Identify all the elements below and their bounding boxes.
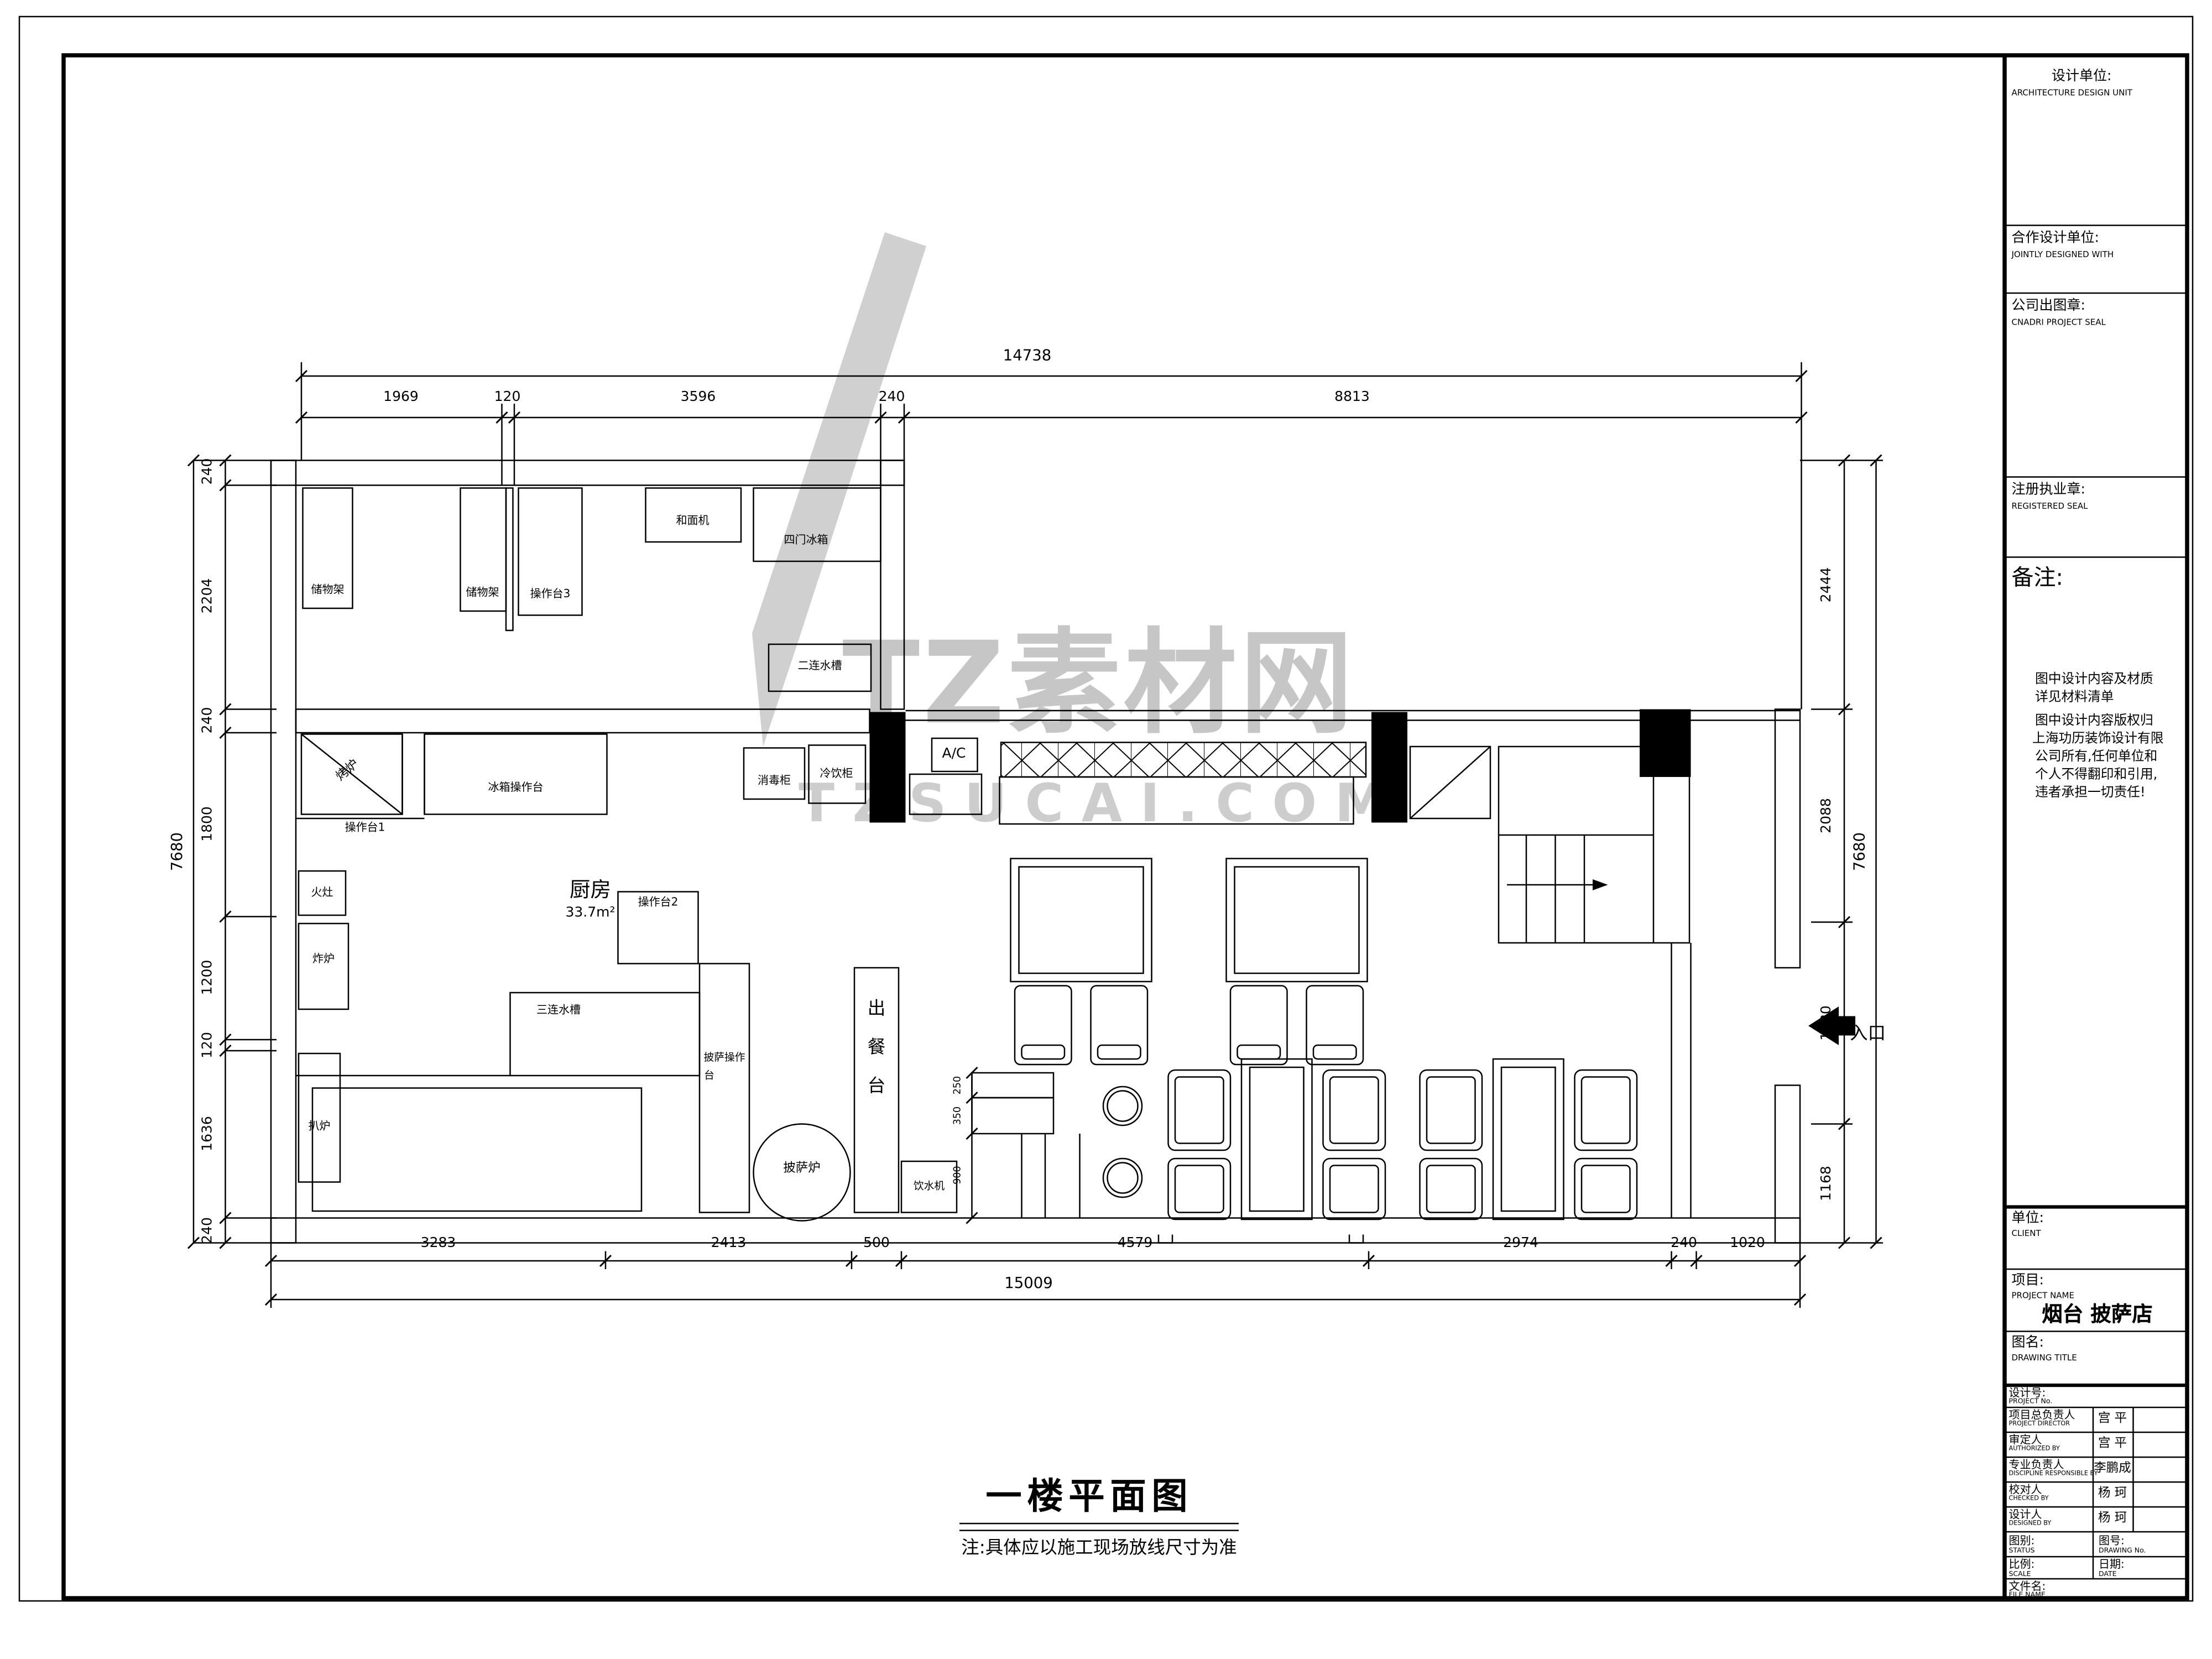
label-four-door-fridge: 四门冰箱 — [784, 535, 828, 546]
remarks-line-1: 详见材料清单 — [2035, 691, 2114, 705]
titleblock-drawing-name-cn: 图名: — [2012, 1337, 2044, 1351]
titleblock-status-cn: 图别: — [2009, 1536, 2035, 1547]
titleblock-drawing-no-en: DRAWING No. — [2099, 1548, 2146, 1556]
label-room-name: 厨房 — [570, 880, 611, 901]
dim-right-seg-1: 2088 — [1821, 798, 1835, 833]
titleblock-row-director-cn: 项目总负责人 — [2009, 1410, 2075, 1421]
label-shelf2: 储物架 — [466, 588, 499, 599]
drawing-sheet: TZ素材网 TZSUCAI.COM — [0, 0, 2212, 1659]
label-double-sink: 二连水槽 — [798, 661, 842, 672]
titleblock-row-authorized-en: AUTHORIZED BY — [2009, 1448, 2060, 1454]
drawing-sheet-viewport: TZ素材网 TZSUCAI.COM — [0, 0, 2212, 1659]
dim-counter-1: 350 — [953, 1107, 963, 1125]
dim-left-seg-4: 1200 — [202, 960, 216, 995]
label-pizza-oven: 披萨炉 — [783, 1164, 821, 1176]
titleblock-row-discipline-value: 李鹏成 — [2094, 1463, 2131, 1476]
dim-left-seg-6: 1636 — [202, 1116, 216, 1151]
titleblock-date-cn: 日期: — [2099, 1559, 2125, 1571]
dim-left-seg-1: 2204 — [202, 578, 216, 614]
floor-plan-linework — [0, 0, 2212, 1659]
remarks-line-6: 违者承担一切责任! — [2035, 787, 2146, 800]
titleblock-drawing-no-cn: 图号: — [2099, 1536, 2125, 1547]
titleblock-project-no-en: PROJECT No. — [2009, 1399, 2053, 1406]
remarks-line-2: 图中设计内容版权归 — [2035, 715, 2153, 728]
titleblock-status-en: STATUS — [2009, 1548, 2035, 1556]
titleblock-project-en: PROJECT NAME — [2012, 1293, 2075, 1301]
titleblock-row-authorized-cn: 审定人 — [2009, 1435, 2042, 1446]
project-name-value: 烟台 披萨店 — [2042, 1305, 2153, 1326]
titleblock-design-unit-en: ARCHITECTURE DESIGN UNIT — [2012, 90, 2132, 98]
drawing-title: 一楼平面图 — [985, 1479, 1193, 1515]
remarks-line-5: 个人不得翻印和引用, — [2035, 769, 2157, 782]
titleblock-client-en: CLIENT — [2012, 1230, 2041, 1239]
label-entrance: 入口 — [1850, 1025, 1886, 1044]
dim-top-seg-3: 240 — [879, 392, 905, 405]
dim-bottom-seg-6: 1020 — [1730, 1238, 1765, 1251]
dim-top-total: 14738 — [1003, 348, 1052, 363]
dim-right-seg-0: 2444 — [1821, 567, 1835, 603]
label-worktop1: 操作台1 — [345, 823, 385, 834]
titleblock-row-designed-cn: 设计人 — [2009, 1510, 2042, 1521]
label-worktop3: 操作台3 — [530, 589, 571, 600]
titleblock-row-authorized-value: 宫 平 — [2098, 1438, 2127, 1451]
dim-left-seg-0: 240 — [202, 458, 216, 485]
titleblock-row-discipline-en: DISCIPLINE RESPONSIBLE BY — [2009, 1473, 2098, 1479]
label-dough-mixer: 和面机 — [676, 516, 709, 527]
dim-bottom-total: 15009 — [1004, 1275, 1053, 1291]
label-pizza-counter-line1: 披萨操作 — [704, 1052, 745, 1063]
titleblock-company-seal-en: CNADRI PROJECT SEAL — [2012, 320, 2106, 328]
label-water-dispenser: 饮水机 — [914, 1181, 945, 1192]
titleblock-client-cn: 单位: — [2012, 1213, 2044, 1227]
dim-left-seg-2: 240 — [202, 707, 216, 734]
titleblock-row-designed-en: DESIGNED BY — [2009, 1522, 2052, 1528]
titleblock-registered-seal-cn: 注册执业章: — [2012, 484, 2085, 498]
label-pizza-counter-line2: 台 — [704, 1071, 714, 1081]
remarks-line-4: 公司所有,任何单位和 — [2035, 751, 2157, 764]
titleblock-design-unit-cn: 设计单位: — [2052, 71, 2111, 85]
dim-bottom-seg-4: 2974 — [1503, 1238, 1538, 1251]
titleblock-date-en: DATE — [2099, 1572, 2117, 1579]
label-fryer: 炸炉 — [312, 954, 335, 965]
remarks-line-3: 上海功历装饰设计有限 — [2032, 733, 2164, 746]
titleblock-scale-en: SCALE — [2009, 1572, 2031, 1579]
titleblock-row-designed-value: 杨 珂 — [2098, 1513, 2127, 1526]
titleblock-row-director-en: PROJECT DIRECTOR — [2009, 1423, 2070, 1429]
label-serving-counter-1: 出 — [868, 1000, 886, 1019]
titleblock-drawing-name-en: DRAWING TITLE — [2012, 1355, 2077, 1363]
dim-top-seg-4: 8813 — [1334, 392, 1370, 405]
titleblock-project-cn: 项目: — [2012, 1275, 2044, 1288]
dim-top-seg-2: 3596 — [681, 392, 716, 405]
dim-bottom-seg-5: 240 — [1671, 1238, 1697, 1251]
titleblock-registered-seal-en: REGISTERED SEAL — [2012, 503, 2088, 512]
remarks-line-0: 图中设计内容及材质 — [2035, 674, 2153, 687]
label-triple-sink: 三连水槽 — [536, 1005, 581, 1016]
label-sterilizer: 消毒柜 — [758, 776, 791, 787]
label-shelf1: 储物架 — [311, 585, 345, 596]
label-fridge-counter: 冰箱操作台 — [488, 782, 544, 794]
dim-right-total: 7680 — [1852, 832, 1867, 871]
dim-right-seg-3: 1168 — [1821, 1166, 1835, 1201]
dim-top-seg-0: 1969 — [383, 392, 419, 405]
label-griddle: 扒炉 — [309, 1121, 331, 1133]
dim-counter-0: 250 — [953, 1076, 963, 1094]
dim-left-seg-7: 240 — [202, 1217, 216, 1244]
titleblock-company-seal-cn: 公司出图章: — [2012, 300, 2085, 314]
dim-left-seg-5: 120 — [202, 1032, 216, 1058]
titleblock-joint-design-en: JOINTLY DESIGNED WITH — [2012, 252, 2114, 260]
dim-counter-2: 900 — [953, 1166, 963, 1184]
label-serving-counter-3: 台 — [868, 1078, 886, 1096]
dim-bottom-seg-0: 3283 — [421, 1238, 456, 1251]
dim-left-seg-3: 1800 — [202, 806, 216, 842]
dim-left-total: 7680 — [169, 832, 185, 871]
dim-top-seg-1: 120 — [494, 392, 521, 405]
titleblock-row-checked-en: CHECKED BY — [2009, 1498, 2049, 1504]
label-serving-counter-2: 餐 — [868, 1039, 886, 1057]
titleblock-row-discipline-cn: 专业负责人 — [2009, 1460, 2064, 1471]
titleblock-remarks-heading: 备注: — [2012, 567, 2064, 589]
label-worktop2: 操作台2 — [638, 898, 679, 909]
drawing-note: 注:具体应以施工现场放线尺寸为准 — [961, 1540, 1237, 1558]
titleblock-scale-cn: 比例: — [2009, 1559, 2035, 1571]
titleblock-joint-design-cn: 合作设计单位: — [2012, 232, 2099, 246]
titleblock-row-checked-cn: 校对人 — [2009, 1485, 2042, 1496]
label-stove: 火灶 — [311, 888, 333, 899]
label-ac-unit: A/C — [942, 748, 966, 762]
label-drink-cabinet: 冷饮柜 — [820, 769, 853, 780]
dim-bottom-seg-1: 2413 — [711, 1238, 747, 1251]
titleblock-row-checked-value: 杨 珂 — [2098, 1488, 2127, 1501]
dim-bottom-seg-3: 4579 — [1118, 1238, 1153, 1251]
label-room-area: 33.7m² — [565, 907, 615, 921]
dim-bottom-seg-2: 500 — [863, 1238, 890, 1251]
titleblock-file-name-en: FILE NAME — [2009, 1593, 2046, 1600]
titleblock-row-director-value: 宫 平 — [2098, 1413, 2127, 1426]
dim-right-seg-2: 1980 — [1821, 1005, 1835, 1041]
